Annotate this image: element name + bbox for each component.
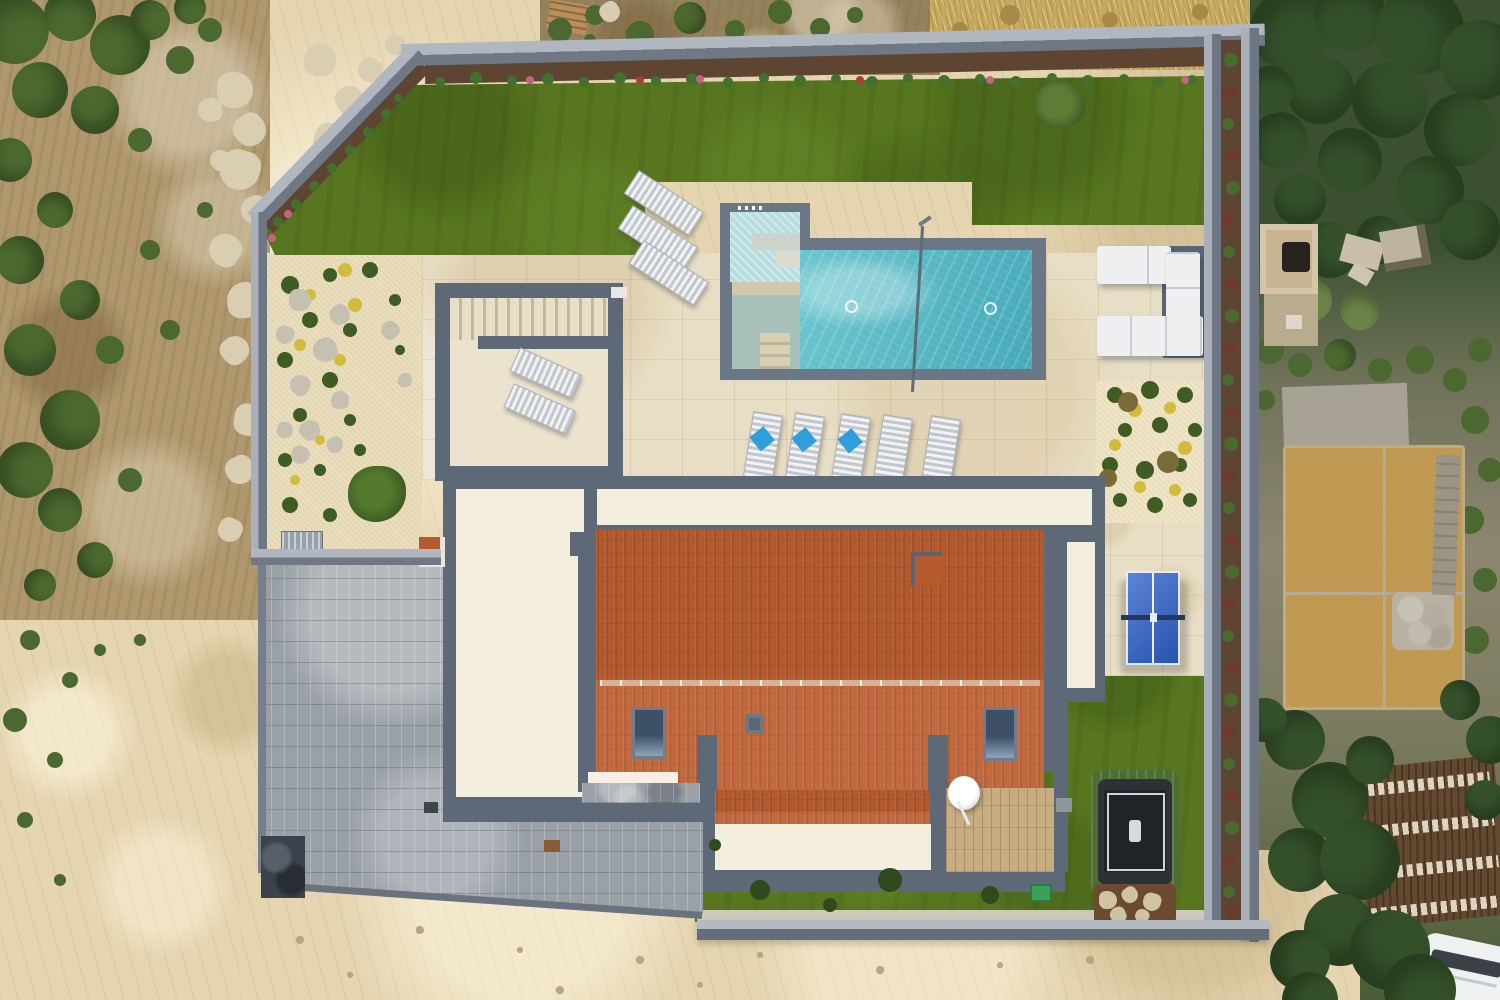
wooden-pergola <box>1352 755 1500 929</box>
flat-roof-left-band <box>443 476 597 820</box>
chimney <box>911 552 942 586</box>
net-center-tab <box>1150 613 1157 622</box>
roof-skylight <box>983 707 1017 761</box>
garden-retaining-wall <box>251 549 441 565</box>
courtyard-wall-cap <box>611 287 627 298</box>
perimeter-wall-left <box>251 212 267 558</box>
trampoline-mat <box>1104 790 1166 872</box>
driveway-accent-tile-brown <box>544 840 560 852</box>
roof-skylight <box>632 707 666 759</box>
courtyard-wall-frame <box>435 283 623 481</box>
roof-extension <box>715 790 930 828</box>
pergola-slat-row <box>1358 772 1491 798</box>
gate-pillar <box>261 836 305 898</box>
old-stone-wall <box>1432 455 1461 596</box>
well-white-slab <box>1286 315 1302 329</box>
perimeter-wall-bottom <box>697 920 1269 940</box>
east-wing-white <box>1067 542 1095 688</box>
sandy-track-left <box>0 620 270 1000</box>
sofa-right-section <box>1166 252 1200 322</box>
deck-right-trim <box>1054 700 1068 872</box>
courtyard-partition-wall <box>478 336 623 349</box>
roof-extension-right-trim <box>928 735 948 875</box>
small-gray-paver <box>1056 798 1072 812</box>
spa-jet-dots <box>738 206 762 210</box>
driveway-accent-tile-dark <box>424 802 438 813</box>
blue-towel <box>749 426 774 451</box>
perimeter-wall-right-outer <box>1241 28 1259 942</box>
rubble-pile <box>1392 592 1454 650</box>
pergola-slat-row <box>1362 813 1495 839</box>
driveway-left-curb <box>258 563 266 873</box>
terrace-bottom-trim <box>697 870 1065 892</box>
roof-ridge-line <box>600 680 1040 686</box>
spa-seat-block <box>776 250 800 268</box>
paver-patch-under-roof <box>582 783 700 803</box>
ruin-stone-2 <box>1379 224 1431 271</box>
roof-vent <box>745 714 764 734</box>
well-opening <box>1282 242 1310 272</box>
sofa-top-section <box>1097 246 1171 284</box>
trampoline-center-pad <box>1129 820 1141 842</box>
gravel-garden-right <box>1096 381 1208 523</box>
utility-lid-green <box>1030 884 1052 902</box>
satellite-dish <box>948 776 980 810</box>
lower-terrace <box>715 824 931 874</box>
pool-drain-ring <box>845 300 858 313</box>
concrete-apron <box>1282 383 1409 452</box>
scrubland-left <box>0 0 270 640</box>
perimeter-wall-right-inner <box>1204 34 1221 934</box>
pool-step-band <box>732 282 800 295</box>
sofa-bottom-section <box>1097 316 1203 356</box>
pergola-slat-row <box>1371 895 1500 921</box>
blue-towel <box>837 428 862 453</box>
pool-entry-steps <box>760 333 790 369</box>
blue-towel <box>791 427 816 452</box>
mulch-patch <box>1094 884 1176 924</box>
spa-seat-block <box>752 233 800 250</box>
pergola-slat-row <box>1366 855 1499 881</box>
aerial-photo-canvas <box>0 0 1500 1000</box>
pool-drain-ring <box>984 302 997 315</box>
pad-division-line-v <box>1383 447 1386 708</box>
flower-hedge-right <box>1221 40 1241 930</box>
olive-tree <box>1035 82 1085 128</box>
